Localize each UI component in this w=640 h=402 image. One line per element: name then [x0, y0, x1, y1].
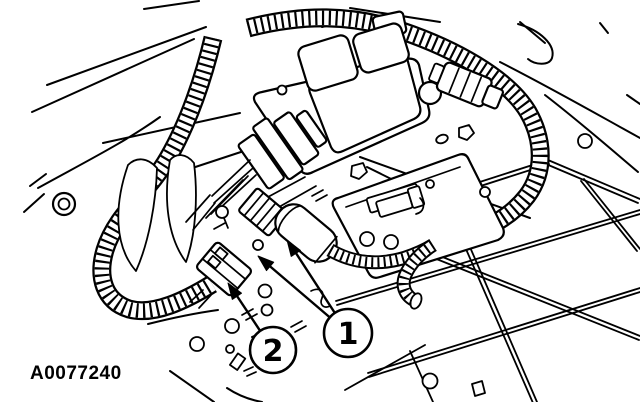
engine-harness-line-art: 1 2 A0077240 — [0, 0, 640, 402]
figure-id-label: A0077240 — [30, 363, 122, 384]
valve-mounting-stud — [253, 240, 263, 250]
callout-2-number: 2 — [263, 334, 284, 369]
module-bolt-hole — [278, 86, 287, 95]
callout-1-number: 1 — [338, 317, 359, 352]
service-manual-illustration: 1 2 A0077240 — [0, 0, 640, 402]
stud-bolt — [216, 206, 228, 218]
